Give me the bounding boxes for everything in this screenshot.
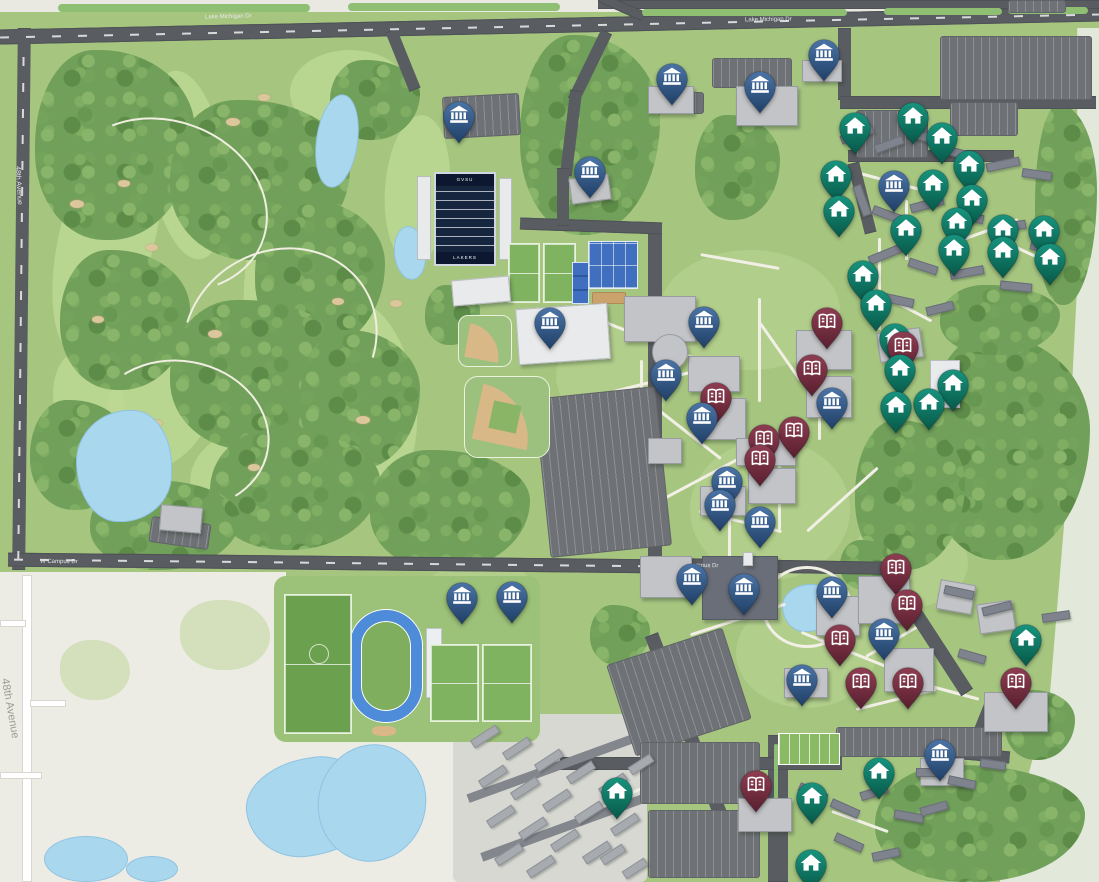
academic-pin[interactable] — [877, 169, 911, 213]
academic-pin[interactable] — [442, 100, 476, 144]
books-pin[interactable] — [739, 769, 773, 813]
academic-pin[interactable] — [867, 617, 901, 661]
academic-pin[interactable] — [743, 70, 777, 114]
academic-pin[interactable] — [785, 663, 819, 707]
housing-pin[interactable] — [822, 194, 856, 238]
housing-pin[interactable] — [794, 848, 828, 882]
books-pin[interactable] — [999, 666, 1033, 710]
academic-pin[interactable] — [727, 572, 761, 616]
academic-pin[interactable] — [495, 580, 529, 624]
academic-pin[interactable] — [815, 575, 849, 619]
academic-pin[interactable] — [649, 358, 683, 402]
academic-pin[interactable] — [687, 305, 721, 349]
books-pin[interactable] — [844, 666, 878, 710]
housing-pin[interactable] — [986, 235, 1020, 279]
housing-pin[interactable] — [879, 390, 913, 434]
pin-layer — [0, 0, 1099, 882]
housing-pin[interactable] — [937, 233, 971, 277]
housing-pin[interactable] — [862, 756, 896, 800]
academic-pin[interactable] — [807, 38, 841, 82]
books-pin[interactable] — [810, 306, 844, 350]
housing-pin[interactable] — [1009, 623, 1043, 667]
books-pin[interactable] — [743, 443, 777, 487]
academic-pin[interactable] — [703, 488, 737, 532]
housing-pin[interactable] — [889, 213, 923, 257]
housing-pin[interactable] — [838, 111, 872, 155]
academic-pin[interactable] — [675, 562, 709, 606]
academic-pin[interactable] — [685, 401, 719, 445]
books-pin[interactable] — [777, 415, 811, 459]
academic-pin[interactable] — [573, 155, 607, 199]
academic-pin[interactable] — [923, 738, 957, 782]
academic-pin[interactable] — [533, 306, 567, 350]
academic-pin[interactable] — [743, 505, 777, 549]
academic-pin[interactable] — [655, 62, 689, 106]
housing-pin[interactable] — [912, 387, 946, 431]
housing-pin[interactable] — [795, 781, 829, 825]
housing-pin[interactable] — [600, 776, 634, 820]
books-pin[interactable] — [823, 623, 857, 667]
academic-pin[interactable] — [815, 386, 849, 430]
campus-map-canvas[interactable]: GVSU LAKERS — [0, 0, 1099, 882]
books-pin[interactable] — [891, 666, 925, 710]
housing-pin[interactable] — [1033, 242, 1067, 286]
academic-pin[interactable] — [445, 581, 479, 625]
